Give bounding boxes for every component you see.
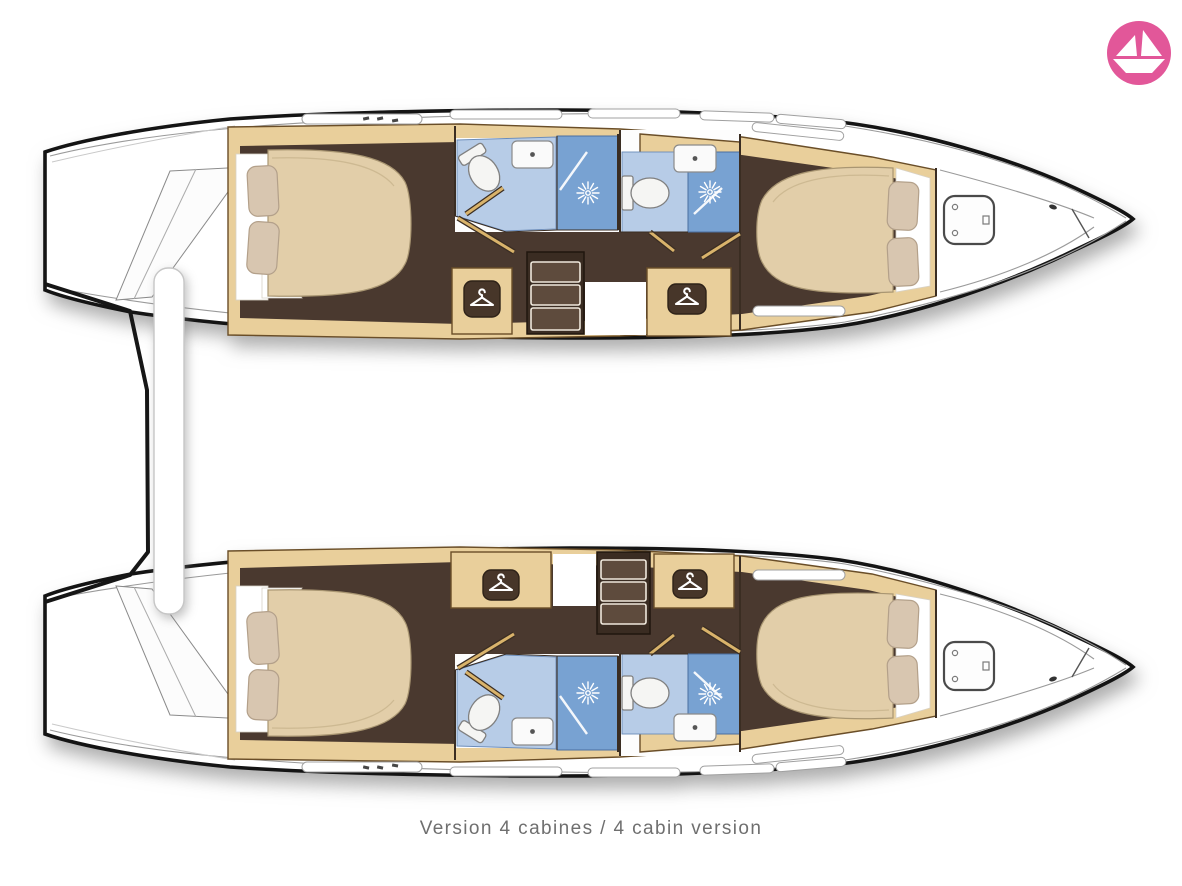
- stern-crossbeam: [45, 284, 148, 602]
- brand-logo: [1107, 21, 1171, 85]
- companionway-steps: [527, 252, 584, 334]
- logo-circle: [1107, 21, 1171, 85]
- plan-caption: Version 4 cabines / 4 cabin version: [0, 818, 1182, 840]
- companionway-steps: [597, 552, 650, 634]
- transom-platform: [154, 268, 184, 614]
- boat-layout-page: Version 4 cabines / 4 cabin version: [0, 0, 1182, 886]
- catamaran-deck-plan: [0, 0, 1182, 886]
